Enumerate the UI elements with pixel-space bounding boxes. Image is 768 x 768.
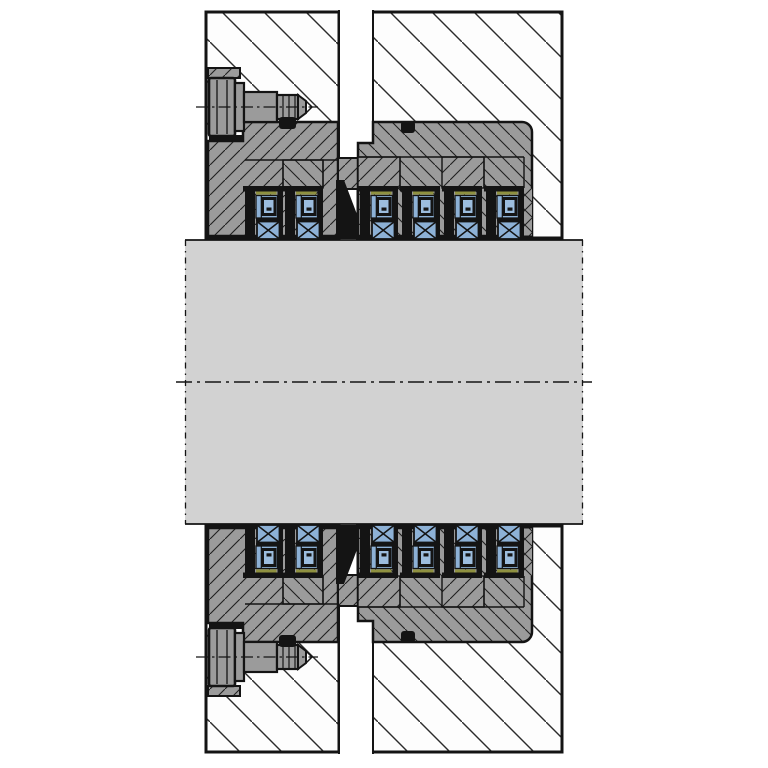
cross-section-svg: Radial shaft sealing assembly — cross-se… [0, 0, 768, 768]
o-ring-right [401, 121, 415, 133]
carrier-module [283, 160, 323, 188]
carrier-module [358, 157, 400, 188]
lower-assembly-mirror [196, 525, 562, 755]
upper-assembly [196, 10, 562, 240]
flange-lip [208, 68, 240, 78]
vent-slot [339, 10, 373, 158]
drawing-canvas: Engineering cross-section of a split hou… [0, 0, 768, 768]
o-ring-left [279, 117, 296, 129]
carrier-module [442, 157, 484, 188]
